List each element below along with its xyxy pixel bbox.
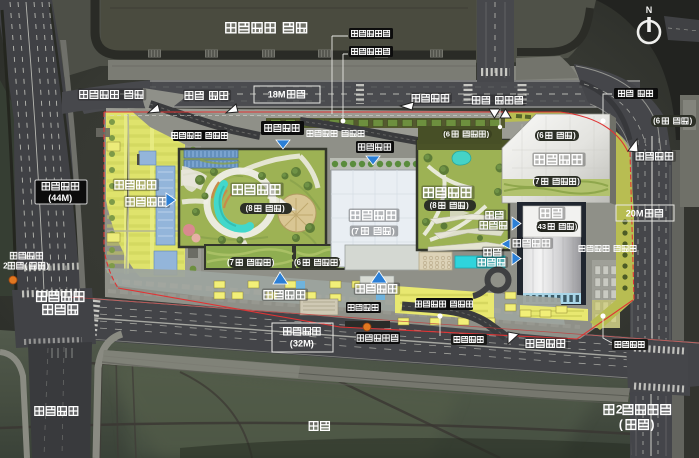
svg-text:2: 2 bbox=[616, 403, 623, 417]
svg-text:): ) bbox=[282, 204, 285, 213]
svg-text:(6: (6 bbox=[653, 117, 661, 126]
svg-text:): ) bbox=[573, 131, 576, 140]
svg-text:(43: (43 bbox=[535, 222, 546, 231]
svg-text:18M: 18M bbox=[268, 89, 286, 99]
svg-text:(6: (6 bbox=[294, 258, 302, 267]
svg-text:): ) bbox=[690, 117, 693, 126]
svg-text:(8: (8 bbox=[246, 204, 254, 213]
svg-text:(6: (6 bbox=[443, 130, 450, 139]
svg-text:): ) bbox=[466, 201, 469, 210]
svg-text:(: ( bbox=[25, 261, 28, 270]
svg-text:(6: (6 bbox=[537, 131, 545, 140]
svg-text:): ) bbox=[651, 418, 655, 432]
svg-text:): ) bbox=[46, 261, 49, 270]
svg-text:N: N bbox=[646, 5, 653, 15]
svg-text:): ) bbox=[577, 177, 580, 186]
svg-text:(: ( bbox=[619, 418, 623, 432]
svg-text:(7: (7 bbox=[351, 226, 359, 236]
svg-text:): ) bbox=[392, 226, 395, 236]
svg-text:): ) bbox=[339, 258, 342, 267]
svg-text:2: 2 bbox=[3, 261, 8, 270]
svg-text:): ) bbox=[272, 258, 275, 267]
svg-text:(44M): (44M) bbox=[48, 193, 72, 203]
svg-text:(32M): (32M) bbox=[290, 338, 314, 348]
svg-text:(7: (7 bbox=[227, 258, 234, 267]
svg-text:20M: 20M bbox=[626, 208, 644, 218]
svg-text:(7: (7 bbox=[533, 177, 540, 186]
svg-text:(8: (8 bbox=[430, 201, 438, 210]
